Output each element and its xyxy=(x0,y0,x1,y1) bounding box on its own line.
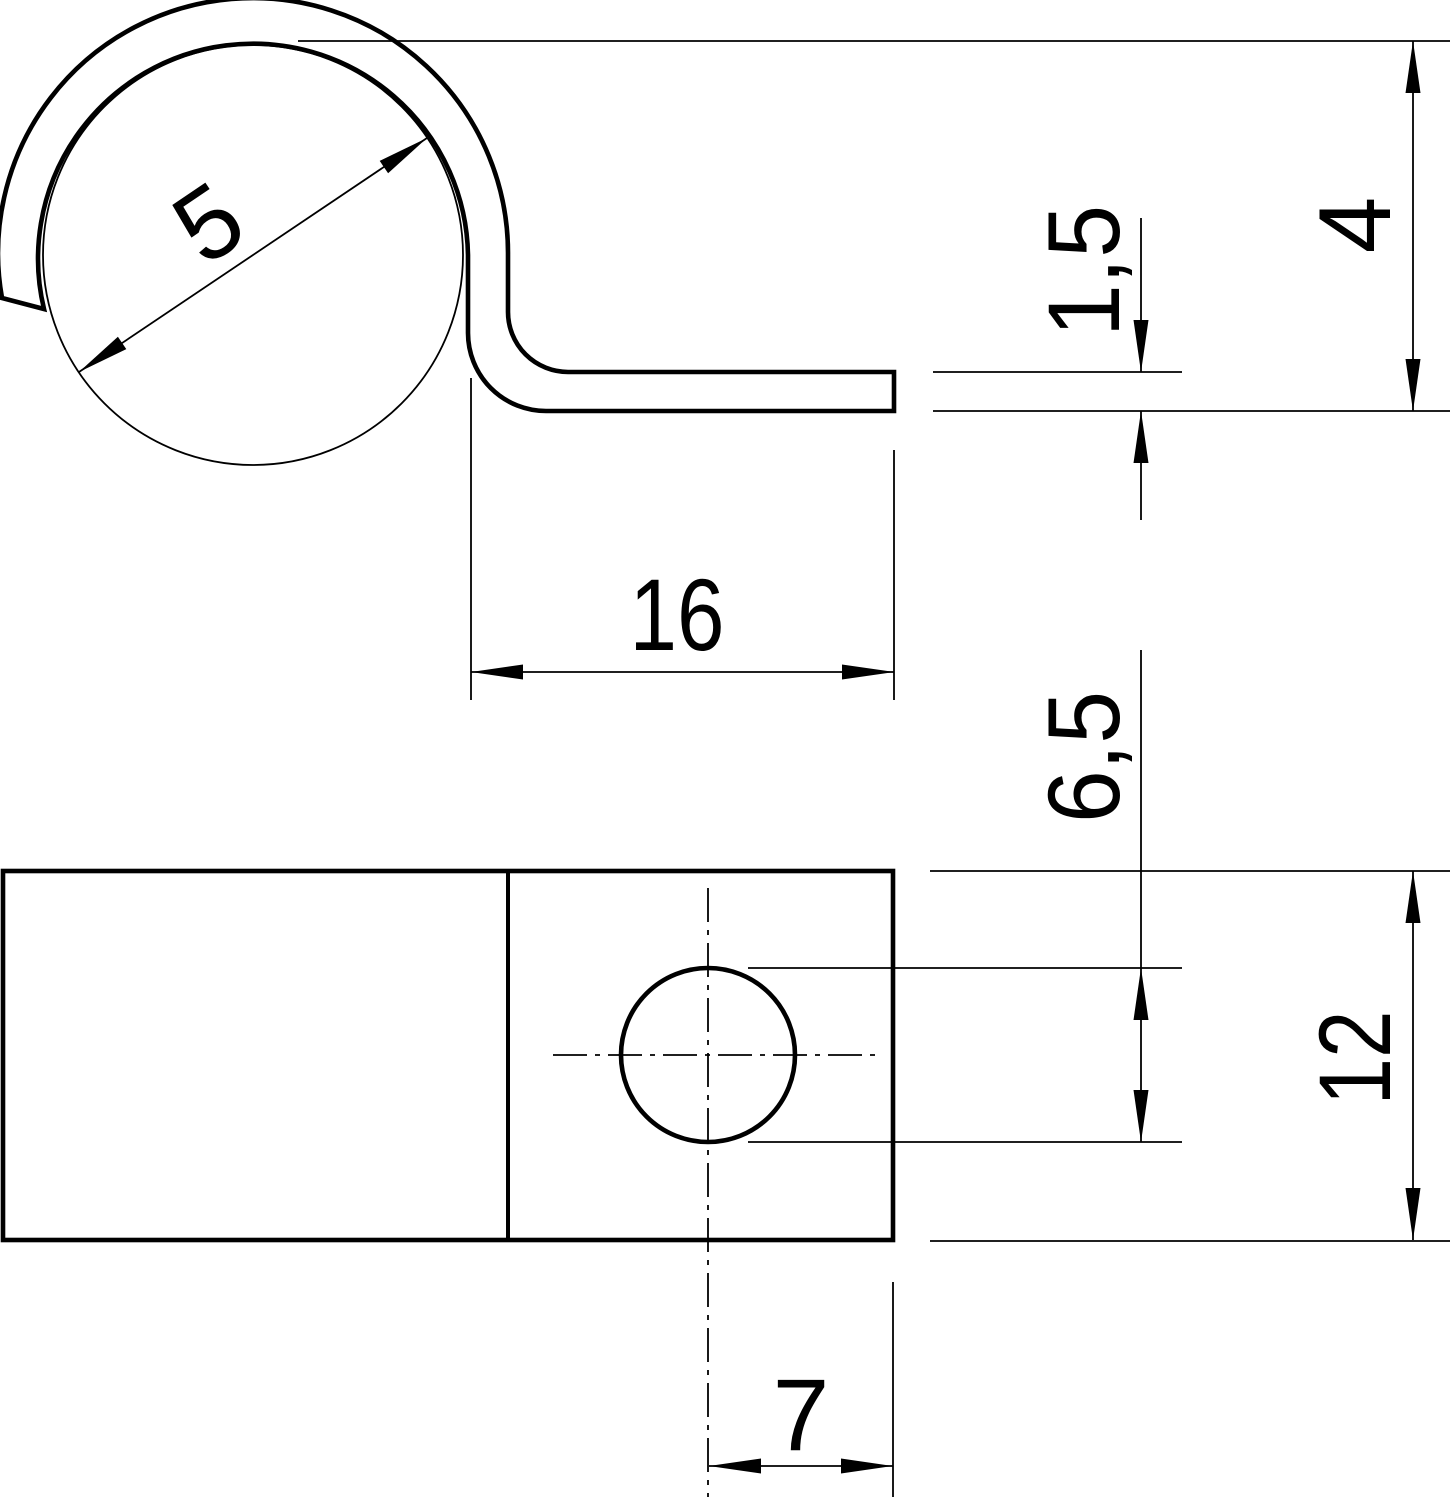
dim-height-label: 4 xyxy=(1298,197,1412,254)
dim-hole-diameter-label: 6,5 xyxy=(1027,691,1141,823)
dim-hole-position-label: 7 xyxy=(773,1358,830,1472)
clamp-technical-drawing: 5 16 1,5 4 xyxy=(0,0,1454,1500)
technical-drawing-page: 5 16 1,5 4 xyxy=(0,0,1454,1500)
dim-thickness-label: 1,5 xyxy=(1027,205,1141,337)
dim-foot-length-label: 16 xyxy=(630,558,725,672)
dim-plate-width-label: 12 xyxy=(1298,1011,1412,1106)
